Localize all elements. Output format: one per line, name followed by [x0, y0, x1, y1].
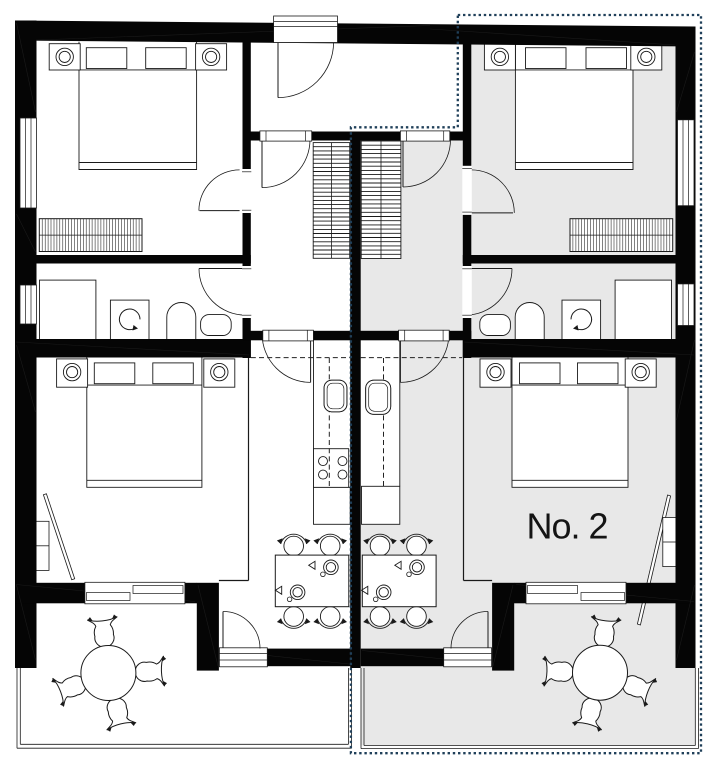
svg-text:No. 2: No. 2	[527, 506, 609, 547]
